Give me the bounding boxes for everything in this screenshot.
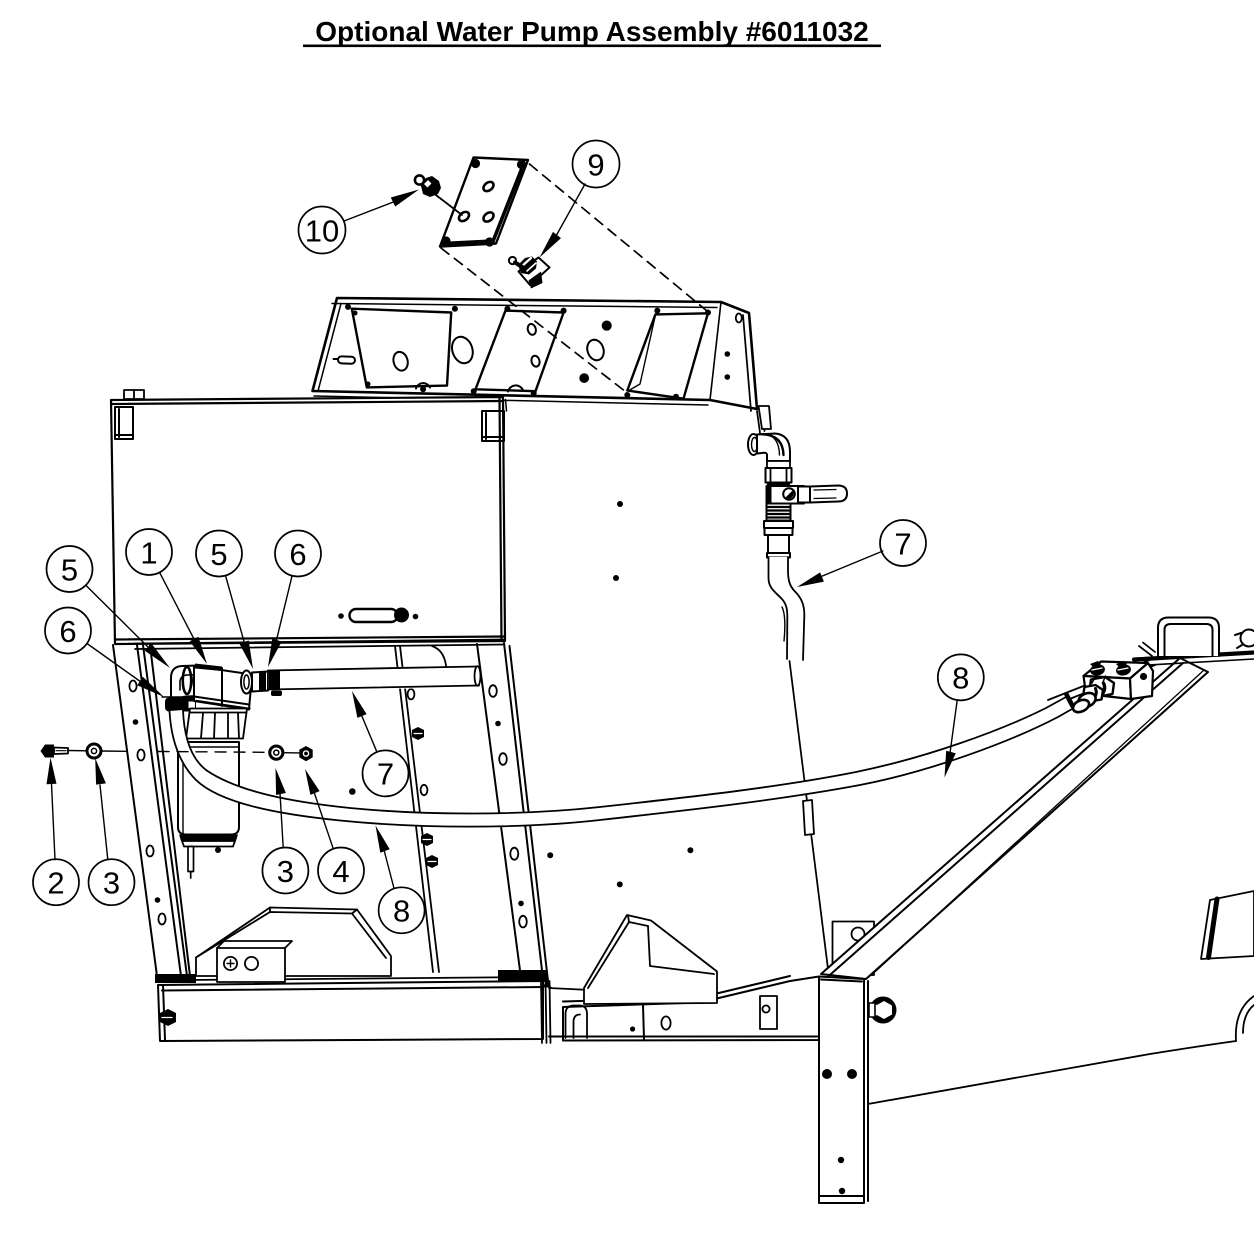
svg-text:4: 4 [332, 854, 349, 889]
svg-text:5: 5 [210, 537, 227, 572]
svg-text:9: 9 [587, 147, 604, 182]
svg-text:7: 7 [377, 757, 394, 792]
svg-text:7: 7 [894, 526, 911, 561]
svg-text:Optional Water Pump Assembly #: Optional Water Pump Assembly #6011032 [315, 16, 868, 47]
svg-text:6: 6 [59, 614, 76, 649]
svg-text:1: 1 [140, 535, 157, 570]
svg-text:10: 10 [305, 213, 339, 248]
svg-text:6: 6 [289, 537, 306, 572]
svg-text:2: 2 [47, 866, 64, 901]
svg-text:3: 3 [103, 866, 120, 901]
svg-text:8: 8 [393, 894, 410, 929]
svg-text:5: 5 [61, 552, 78, 587]
svg-text:8: 8 [952, 661, 969, 696]
svg-text:3: 3 [277, 854, 294, 889]
